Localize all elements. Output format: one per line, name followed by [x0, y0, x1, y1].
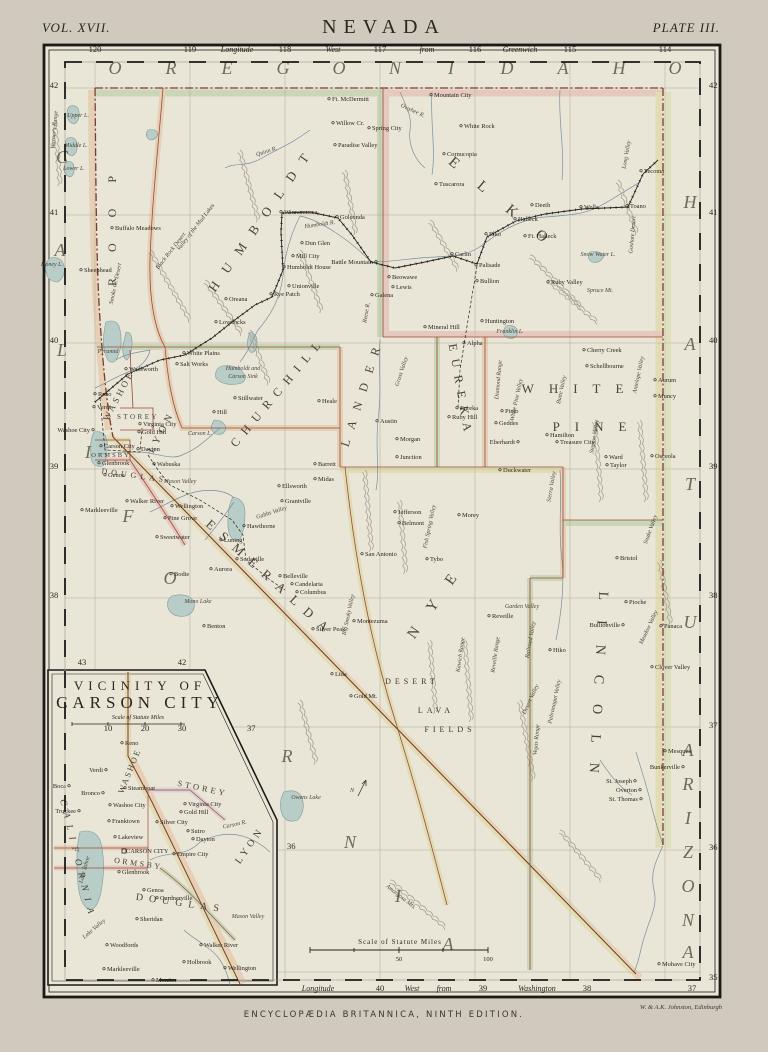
map-plate-page: VOL. XVII. NEVADA PLATE III. — [0, 0, 768, 1052]
place-label: Sheridan — [140, 916, 164, 923]
feature-label: Humboldt and — [225, 366, 262, 372]
bottom-axis-label: West — [405, 984, 421, 993]
place-label: White Plains — [187, 350, 220, 357]
place-label: Gold Mt. — [354, 693, 378, 700]
feature-label: Mono Lake — [183, 599, 211, 605]
place-label: Aurum — [658, 377, 676, 384]
place-label: Gold Hill — [184, 809, 209, 816]
place-label: Sweetwater — [160, 534, 191, 541]
place-label: Empire City — [177, 851, 209, 858]
place-label: Woodfords — [110, 942, 139, 949]
bottom-axis-label: Washington — [518, 984, 556, 993]
inner-axis-tick: 36 — [287, 841, 296, 851]
place-label: Morgan — [400, 436, 421, 443]
place-label: Tecoma — [644, 168, 664, 175]
top-axis-tick: 119 — [184, 44, 196, 54]
svg-text:100: 100 — [483, 956, 493, 963]
place-label: Ruby Hill — [452, 414, 478, 421]
place-label: Tybo — [430, 556, 443, 563]
place-label: Montezuma — [357, 618, 388, 625]
place-label: Reno — [98, 391, 112, 398]
left-axis-tick: 39 — [50, 461, 59, 471]
county-name: ORMSBY — [91, 452, 130, 459]
place-label: Franktown — [112, 818, 140, 825]
place-label: Tuscarora — [439, 181, 464, 188]
state-name-letter: N — [681, 910, 695, 930]
place-label: Gardnerville — [160, 895, 192, 902]
place-label: Mineral Hill — [428, 324, 460, 331]
place-label: Ward — [609, 454, 623, 461]
place-label: Rye Patch — [274, 291, 301, 298]
place-label: Wellington — [228, 965, 257, 972]
inset-title-line2: CARSON CITY — [56, 693, 224, 712]
inset-scale-tick: 20 — [141, 723, 150, 733]
place-label: Salt Works — [180, 361, 208, 368]
place-label: Hawthorne — [247, 523, 276, 530]
bottom-axis-label: Longitude — [301, 984, 335, 993]
place-label: Glenbrook — [122, 869, 150, 876]
county-name: STOREY — [117, 413, 159, 421]
place-label: Galena — [375, 292, 393, 299]
feature-label: Carson L. — [188, 431, 212, 437]
place-label: Bullion — [480, 278, 500, 285]
place-label: Clover Valley — [655, 664, 691, 671]
state-name-letter: C — [56, 147, 69, 167]
top-axis-tick: 116 — [469, 44, 481, 54]
place-label: Walker River — [204, 942, 239, 949]
state-name-letter: A — [442, 934, 455, 954]
place-label: Beowawe — [392, 274, 417, 281]
state-name-letter: R — [165, 58, 177, 78]
place-label: Pine Grove — [168, 515, 197, 522]
bottom-axis-label: from — [437, 984, 452, 993]
place-label: Unionville — [292, 283, 319, 290]
state-name-letter: H — [612, 58, 627, 78]
feature-label: Garden Valley — [505, 604, 540, 610]
place-label: Dayton — [141, 446, 161, 453]
place-label: Humboldt House — [287, 264, 331, 271]
feature-label: Pyramid — [97, 349, 120, 355]
place-label: Benton — [207, 623, 226, 630]
feature-label: Lower L. — [62, 166, 85, 172]
county-name: WHITE — [522, 381, 639, 396]
place-label: Midas — [318, 476, 334, 483]
place-label: Steamboat — [128, 785, 155, 792]
right-axis-tick: 38 — [709, 590, 718, 600]
place-label: Bullionville — [589, 622, 620, 629]
state-name-letter: G — [277, 58, 290, 78]
inset-scale-title: Scale of Statute Miles — [112, 714, 165, 721]
place-label: Ellsworth — [282, 483, 308, 490]
state-name-letter: O — [682, 876, 695, 896]
place-label: Lovelocks — [219, 319, 246, 326]
place-label: Silver City — [160, 819, 189, 826]
region-label: DESERT — [385, 677, 439, 686]
place-label: Belleville — [283, 573, 308, 580]
place-label: Lida — [335, 671, 347, 678]
feature-label: Middle L. — [63, 143, 87, 149]
place-label: Sheephead — [84, 267, 112, 274]
feature-label: Carson Sink — [228, 374, 258, 380]
place-label: Battle Mountain — [331, 259, 374, 266]
feature-label: Snow Water L. — [581, 252, 616, 258]
place-label: Luning — [224, 537, 243, 544]
place-label: Wabuska — [157, 461, 180, 468]
place-label: Verdi — [89, 767, 103, 774]
bottom-axis-label: 39 — [479, 983, 488, 993]
place-label: Washoe City — [113, 802, 146, 809]
map-canvas: VOL. XVII. NEVADA PLATE III. — [0, 0, 768, 1052]
state-name-letter: A — [684, 334, 697, 354]
right-axis-tick: 35 — [709, 972, 718, 982]
place-label: Mill City — [296, 253, 320, 260]
place-label: Ft. McDermitt — [332, 96, 369, 103]
state-name-letter: N — [343, 832, 357, 852]
place-label: Bunkerville — [650, 764, 680, 771]
top-axis-tick: 120 — [89, 44, 102, 54]
place-label: Aurora — [214, 566, 232, 573]
feature-label: Honey L. — [40, 262, 63, 268]
feature-label: Upper L. — [67, 113, 89, 119]
place-label: Glenbrook — [102, 460, 130, 467]
inset-scale-tick: 30 — [178, 723, 187, 733]
place-label: Toano — [630, 203, 646, 210]
place-label: Deeth — [535, 202, 551, 209]
inset-top-tick: 43 — [78, 657, 87, 667]
right-axis-tick: 37 — [709, 720, 718, 730]
place-label: Genoa — [147, 887, 164, 894]
place-label: Cherry Creek — [587, 347, 622, 354]
left-axis-tick: 42 — [50, 80, 59, 90]
place-label: Dayton — [196, 836, 216, 843]
place-label: Wells — [584, 204, 599, 211]
place-label: Carson City — [104, 443, 136, 450]
place-label: Bodie — [174, 571, 189, 578]
place-label: Markleeville — [85, 507, 118, 514]
place-label: CARSON CITY — [126, 848, 169, 855]
place-label: Virginia City — [143, 421, 177, 428]
place-label: Overton — [616, 787, 638, 794]
state-name-letter: I — [684, 808, 692, 828]
page-title: NEVADA — [322, 16, 446, 38]
top-axis-word: Longitude — [220, 45, 254, 54]
left-axis-tick: 41 — [50, 207, 59, 217]
place-label: Schellbourne — [590, 363, 624, 370]
place-label: Mohave City — [662, 961, 696, 968]
feature-label: Spruce Mt. — [587, 288, 613, 294]
feature-label: Franklin L. — [495, 329, 523, 335]
place-label: Cornucopia — [447, 151, 477, 158]
place-label: Palisade — [479, 262, 500, 269]
place-label: Dun Glen — [305, 240, 331, 247]
place-label: Pioche — [629, 599, 647, 606]
place-label: Grantville — [285, 498, 311, 505]
footer-edition: ENCYCLOPÆDIA BRITANNICA, NINTH EDITION. — [244, 1010, 524, 1020]
place-label: Hill — [217, 409, 227, 416]
state-name-letter: U — [684, 612, 698, 632]
place-label: Morey — [462, 512, 480, 519]
right-axis-tick: 36 — [709, 842, 718, 852]
place-label: St. Joseph — [606, 778, 633, 785]
top-axis-tick: 117 — [374, 44, 386, 54]
top-axis-tick: 114 — [659, 44, 672, 54]
place-label: Markleeville — [107, 966, 140, 973]
place-label: Washoe City — [57, 427, 90, 434]
state-name-letter: F — [122, 506, 135, 526]
place-label: Wadsworth — [129, 366, 159, 373]
place-label: Barrett — [318, 461, 336, 468]
place-label: Genoa — [108, 472, 125, 479]
header-plate: PLATE III. — [652, 20, 720, 35]
place-label: Heale — [322, 398, 337, 405]
place-label: Sutro — [191, 828, 205, 835]
bottom-axis-label: 40 — [376, 983, 385, 993]
place-label: Paradise Valley — [338, 142, 378, 149]
place-label: Hamilton — [550, 432, 575, 439]
bottom-axis-label: 37 — [688, 983, 697, 993]
svg-text:Scale of Statute Miles: Scale of Statute Miles — [358, 938, 442, 946]
place-label: Junction — [400, 454, 422, 461]
right-axis-tick: 39 — [709, 461, 718, 471]
place-label: Wellington — [175, 503, 204, 510]
place-label: Boca — [53, 783, 66, 790]
place-label: Panaca — [664, 623, 682, 630]
place-label: White Rock — [464, 123, 496, 130]
place-label: Spring City — [372, 125, 402, 132]
place-label: Willow Cr. — [336, 120, 365, 127]
place-label: Golconda — [340, 214, 365, 221]
place-label: Osceola — [655, 453, 676, 460]
state-name-letter: Z — [683, 842, 694, 862]
inset-scale-tick: 10 — [104, 723, 113, 733]
state-name-letter: A — [557, 58, 570, 78]
footer-engraver: W. & A.K. Johnston, Edinburgh — [640, 1004, 722, 1011]
place-label: Huntington — [485, 318, 515, 325]
state-name-letter: I — [447, 58, 455, 78]
place-label: Reveille — [492, 613, 513, 620]
place-label: Duckwater — [503, 467, 532, 474]
place-label: Alpha — [467, 340, 483, 347]
place-label: Mountain City — [434, 92, 472, 99]
place-label: Belmont — [402, 520, 424, 527]
state-name-letter: E — [221, 58, 233, 78]
region-label: FIELDS — [424, 725, 475, 734]
place-label: Candelaria — [295, 581, 323, 588]
inset-feature-label: Mason Valley — [231, 914, 265, 920]
place-label: Ft. Halleck — [528, 233, 557, 240]
state-name-letter: R — [281, 746, 293, 766]
place-label: Columbus — [300, 589, 327, 596]
state-name-letter: O — [109, 58, 122, 78]
top-axis-word: Greenwich — [503, 45, 538, 54]
top-axis-tick: 115 — [564, 44, 576, 54]
place-label: Austin — [380, 418, 398, 425]
place-label: Holbrook — [187, 959, 212, 966]
place-label: Walker River — [130, 498, 165, 505]
place-label: Virginia City — [188, 801, 222, 808]
state-name-letter: D — [500, 58, 514, 78]
place-label: Verdi — [97, 404, 111, 411]
feature-label: Mason Valley — [163, 479, 197, 485]
top-axis-word: from — [420, 45, 435, 54]
bottom-axis-label: 38 — [583, 983, 592, 993]
inner-axis-tick: 37 — [247, 723, 256, 733]
state-name-letter: A — [682, 942, 695, 962]
left-axis-tick: 40 — [50, 335, 59, 345]
left-axis-tick: 38 — [50, 590, 59, 600]
feature-label: Owens Lake — [291, 795, 321, 801]
top-axis-word: West — [326, 45, 342, 54]
place-label: Bristol — [620, 555, 638, 562]
region-label: LAVA — [418, 706, 454, 715]
inset-top-tick: 42 — [178, 657, 187, 667]
place-label: Gold Hill — [142, 429, 167, 436]
state-name-letter: R — [682, 774, 694, 794]
right-axis-tick: 40 — [709, 335, 718, 345]
top-axis-tick: 118 — [279, 44, 291, 54]
place-label: Jefferson — [398, 509, 422, 516]
place-label: Carlin — [455, 251, 472, 258]
right-axis-tick: 41 — [709, 207, 718, 217]
place-label: St. Thomas — [609, 796, 639, 803]
place-label: San Antonio — [365, 551, 397, 558]
place-label: Hiko — [553, 647, 566, 654]
svg-text:50: 50 — [396, 956, 403, 963]
place-label: Reno — [125, 740, 139, 747]
state-name-letter: H — [683, 192, 698, 212]
place-label: Eberhardt — [490, 439, 515, 446]
header-volume: VOL. XVII. — [42, 20, 110, 35]
inset-title-line1: VICINITY OF — [74, 678, 206, 693]
place-label: Lewis — [396, 284, 412, 291]
right-axis-tick: 42 — [709, 80, 718, 90]
state-name-letter: O — [669, 58, 682, 78]
state-name-letter: O — [333, 58, 346, 78]
place-label: Muncy — [658, 393, 677, 400]
state-name-letter: N — [388, 58, 402, 78]
place-label: Winnemucca — [284, 209, 318, 216]
place-label: Halleck — [518, 216, 539, 223]
place-label: Lakeview — [118, 834, 144, 841]
place-label: Buffalo Meadows — [115, 225, 161, 232]
place-label: Eureka — [460, 405, 478, 412]
place-label: Oreana — [229, 296, 248, 303]
place-label: Geddes — [499, 420, 519, 427]
place-label: Elko — [489, 231, 501, 238]
place-label: Ruby Valley — [551, 279, 583, 286]
place-label: Bronco — [81, 790, 100, 797]
place-label: Taylor — [610, 462, 627, 469]
place-label: Mesquite — [668, 748, 692, 755]
place-label: Stillwater — [238, 395, 264, 402]
place-label: Sodaville — [240, 556, 264, 563]
